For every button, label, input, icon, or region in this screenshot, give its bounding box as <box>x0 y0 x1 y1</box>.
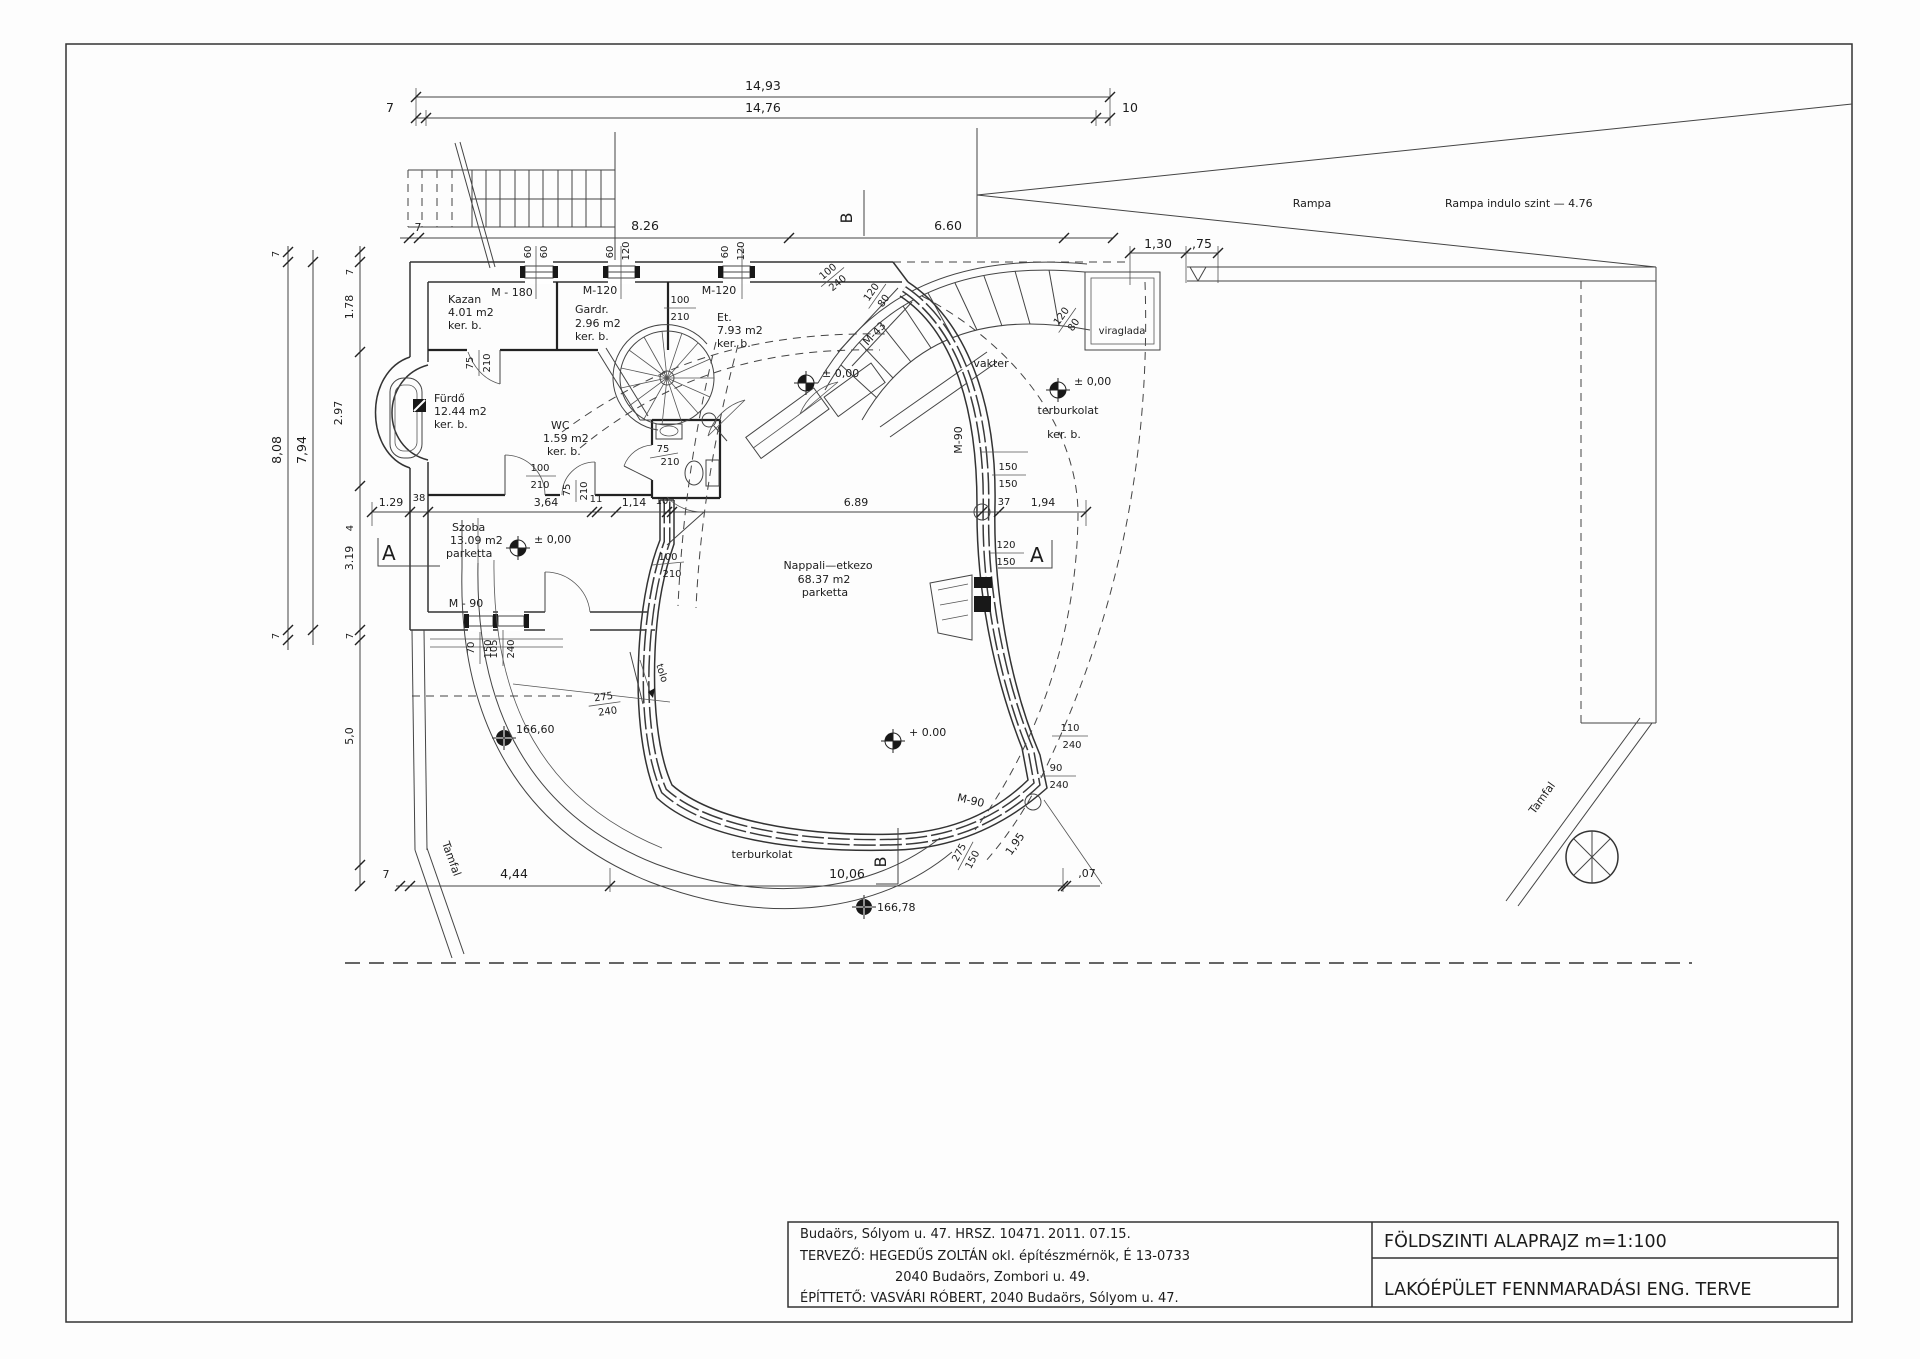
furdo-door1-n: 100 <box>530 463 549 474</box>
gardr-name: Gardr. <box>575 303 609 316</box>
size-120-80b-d: 80 <box>1066 317 1082 334</box>
terburkolat-bottom: terburkolat <box>732 848 794 861</box>
curve-door-n: 100 <box>658 552 677 563</box>
size-120-80a-d: 80 <box>876 293 892 310</box>
dim-10b: 10 <box>656 496 669 507</box>
dim-194: 1,94 <box>1031 496 1056 509</box>
nappali-name: Nappali—etkezo <box>783 559 872 572</box>
dim-b7: 7 <box>383 868 390 881</box>
room-szoba: Szoba 13.09 m2 parketta <box>446 521 503 560</box>
furdo-door2-d: 210 <box>579 481 590 500</box>
terburkolat-right: terburkolat <box>1038 404 1100 417</box>
level-icon <box>506 536 530 560</box>
tolo-label: tolo <box>653 663 669 684</box>
curve-door-d: 210 <box>662 569 681 580</box>
nappali-area: 68.37 m2 <box>798 573 851 586</box>
dim-inner-v: 7,94 <box>294 436 309 464</box>
ramp-level-label: Rampa indulo szint — 4.76 <box>1445 197 1593 210</box>
door-m120a-label: M-120 <box>583 284 617 297</box>
dimension-left: 8,08 7 7 7,94 7 1.78 2.97 4 3.19 7 5,0 <box>269 246 365 891</box>
szoba-finish: parketta <box>446 547 492 560</box>
drawing-title: FÖLDSZINTI ALAPRAJZ m=1:100 <box>1384 1230 1667 1252</box>
wc-door-n: 75 <box>657 444 670 455</box>
wc-door-d: 210 <box>660 457 679 468</box>
dim-114: 1,14 <box>622 496 647 509</box>
room-gardr: Gardr. 2.96 m2 ker. b. <box>575 303 621 343</box>
dim-38: 38 <box>413 493 426 504</box>
win2-w: 60 <box>605 246 616 259</box>
level-szoba: ± 0,00 <box>534 533 571 546</box>
project-title: LAKÓÉPÜLET FENNMARADÁSI ENG. TERVE <box>1384 1278 1751 1300</box>
dim-11: 11 <box>590 494 603 505</box>
room-wc: WC 1.59 m2 ker. b. <box>543 419 589 458</box>
dim-297: 2.97 <box>332 401 345 426</box>
north-symbol <box>1566 831 1618 883</box>
kazan-door: 75 210 <box>465 350 500 384</box>
dimension-bottom: 7 4,44 10,06 ,07 <box>383 866 1101 892</box>
room-labels: Kazan 4.01 m2 ker. b. Gardr. 2.96 m2 ker… <box>434 293 873 599</box>
size-275-240-n: 275 <box>593 691 613 705</box>
section-a-right: A <box>1030 543 1044 567</box>
gardr-finish: ker. b. <box>575 330 609 343</box>
dim-07: ,07 <box>1078 867 1096 880</box>
win3-w: 60 <box>720 246 731 259</box>
section-b-top: B <box>837 213 856 224</box>
nappali-finish: parketta <box>802 586 848 599</box>
et-door-n: 100 <box>670 295 689 306</box>
door-m120b-label: M-120 <box>702 284 736 297</box>
wc-room: 75 210 <box>624 420 720 498</box>
bathtub <box>390 378 422 458</box>
dimension-row2: 7 8.26 6.60 <box>400 218 1118 243</box>
furdo-area: 12.44 m2 <box>434 405 487 418</box>
dimension-top: 14,93 14,76 7 10 <box>386 78 1138 126</box>
flue-symbol <box>413 399 426 412</box>
room-furdo: Fürdő 12.44 m2 ker. b. <box>434 392 487 431</box>
size-90-240-n: 90 <box>1050 763 1063 774</box>
kazan-area: 4.01 m2 <box>448 306 494 319</box>
level-icon <box>794 371 818 395</box>
floor-plan-canvas: Budaörs, Sólyom u. 47. HRSZ. 10471. 2011… <box>0 0 1920 1359</box>
designer-line: TERVEZŐ: HEGEDŰS ZOLTÁN okl. építészmérn… <box>799 1248 1190 1264</box>
dim-c7a: 7 <box>345 269 356 275</box>
entry-walls: M-43 vakter <box>838 288 1009 437</box>
level-terrace: ± 0,00 <box>1074 375 1111 388</box>
fireplace <box>930 575 992 640</box>
terrace-labels: terburkolat ker. b. terburkolat <box>732 404 1100 861</box>
win2-h: 120 <box>621 241 632 260</box>
dim-75: ,75 <box>1192 236 1212 251</box>
size-275-150-d: 150 <box>964 849 983 871</box>
size-110-240-n: 110 <box>1060 723 1079 734</box>
door-m90c-label: M-90 <box>956 791 986 810</box>
exterior-stair-top <box>408 132 615 268</box>
furdo-name: Fürdő <box>434 392 465 405</box>
door-m180-label: M - 180 <box>491 286 532 299</box>
size-120-150-n: 120 <box>996 540 1015 551</box>
kazan-finish: ker. b. <box>448 319 482 332</box>
window-top-1 <box>520 260 558 284</box>
szoba-windows: 70 150 105 240 M - 90 <box>430 572 590 666</box>
szoba-name: Szoba <box>452 521 485 534</box>
dim-total-v: 8,08 <box>269 436 284 464</box>
room-kazan: Kazan 4.01 m2 ker. b. <box>448 293 494 332</box>
drawing-sheet: Budaörs, Sólyom u. 47. HRSZ. 10471. 2011… <box>0 0 1920 1359</box>
size-90-240-d: 240 <box>1049 780 1068 791</box>
dim-gap-7: 7 <box>386 100 394 115</box>
spot-level-2: 166,78 <box>877 901 916 914</box>
size-120-150-d: 150 <box>996 557 1015 568</box>
win1-h: 60 <box>539 246 550 259</box>
door-m90a-label: M-90 <box>952 426 965 453</box>
furdo-finish: ker. b. <box>434 418 468 431</box>
dim-c7b: 7 <box>345 633 356 639</box>
window-top-2 <box>603 260 640 284</box>
dim-7-bl: 7 <box>271 633 282 639</box>
furdo-door1-d: 210 <box>530 480 549 491</box>
title-block: Budaörs, Sólyom u. 47. HRSZ. 10471. 2011… <box>788 1222 1838 1307</box>
section-b-bottom: B <box>871 857 890 868</box>
wc-area: 1.59 m2 <box>543 432 589 445</box>
win1-w: 60 <box>523 246 534 259</box>
wing-openings: 110 240 90 240 <box>1040 723 1088 791</box>
et-name: Et. <box>717 311 732 324</box>
size-275-240-d: 240 <box>598 705 618 719</box>
sheet-border <box>66 44 1852 1322</box>
property-lines <box>345 262 1692 963</box>
tamfal-right-label: Tamfal <box>1526 780 1558 818</box>
dim-660: 6.60 <box>934 218 962 233</box>
tamfal-left-label: Tamfal <box>439 839 464 878</box>
dim-689: 6.89 <box>844 496 869 509</box>
ramp-label: Rampa <box>1293 197 1332 210</box>
level-entry: ± 0,00 <box>822 367 859 380</box>
win3-h: 120 <box>736 241 747 260</box>
level-icon <box>1046 378 1070 402</box>
kazan-door-size-n: 75 <box>465 357 476 370</box>
gardr-area: 2.96 m2 <box>575 317 621 330</box>
section-a-left: A <box>382 541 396 565</box>
level-nappali: + 0.00 <box>909 726 946 739</box>
window-top-3 <box>718 260 755 284</box>
dim-319: 3.19 <box>343 546 356 571</box>
dim-130: 1,30 <box>1144 236 1172 251</box>
dim-37: 37 <box>998 497 1011 508</box>
et-area: 7.93 m2 <box>717 324 763 337</box>
retaining-wall-left: Tamfal <box>412 630 464 958</box>
wc-name: WC <box>551 419 570 432</box>
dim-826: 8.26 <box>631 218 659 233</box>
dim-7-tl: 7 <box>271 251 282 257</box>
furdo-door2-n: 75 <box>562 484 573 497</box>
size-150-150-n: 150 <box>998 462 1017 473</box>
szoba-area: 13.09 m2 <box>450 534 503 547</box>
size-150-150-d: 150 <box>998 479 1017 490</box>
dim-50: 5,0 <box>343 727 356 745</box>
dim-4: 4 <box>345 525 356 531</box>
terburkolat-right-fin: ker. b. <box>1047 428 1081 441</box>
size-110-240-d: 240 <box>1062 740 1081 751</box>
designer-address: 2040 Budaörs, Zombori u. 49. <box>895 1270 1090 1285</box>
dim-width-inner: 14,76 <box>745 100 781 115</box>
viraglada-label: viraglada <box>1099 326 1146 337</box>
right-wall-openings: M-90 150 150 120 150 <box>952 426 1028 568</box>
drawing-date: 2011. 07.15. <box>1048 1227 1131 1242</box>
kazan-door-size-d: 210 <box>482 353 493 372</box>
dim-178: 1.78 <box>343 295 356 320</box>
retaining-wall-right: Tamfal <box>1187 267 1656 906</box>
project-address: Budaörs, Sólyom u. 47. HRSZ. 10471. <box>800 1227 1045 1242</box>
szoba-win2-d: 240 <box>506 639 517 658</box>
et-door-d: 210 <box>670 312 689 323</box>
planter-box: viraglada <box>1085 272 1160 350</box>
level-icon <box>881 729 905 753</box>
vakter-label: vakter <box>973 357 1009 370</box>
dim-364: 3,64 <box>534 496 559 509</box>
kazan-name: Kazan <box>448 293 481 306</box>
dim-444: 4,44 <box>500 866 528 881</box>
dim-129: 1.29 <box>379 496 404 509</box>
spot-level-icon <box>852 895 876 919</box>
dim-width-total: 14,93 <box>745 78 781 93</box>
client-line: ÉPÍTTETŐ: VASVÁRI RÓBERT, 2040 Budaörs, … <box>800 1290 1179 1306</box>
szoba-win2-n: 105 <box>489 639 500 658</box>
dim-1006: 10,06 <box>829 866 865 881</box>
dim-gap-10: 10 <box>1122 100 1138 115</box>
et-finish: ker. b. <box>717 337 751 350</box>
room-nappali: Nappali—etkezo 68.37 m2 parketta <box>783 559 872 599</box>
wc-finish: ker. b. <box>547 445 581 458</box>
spot-level-1: 166,60 <box>516 723 555 736</box>
